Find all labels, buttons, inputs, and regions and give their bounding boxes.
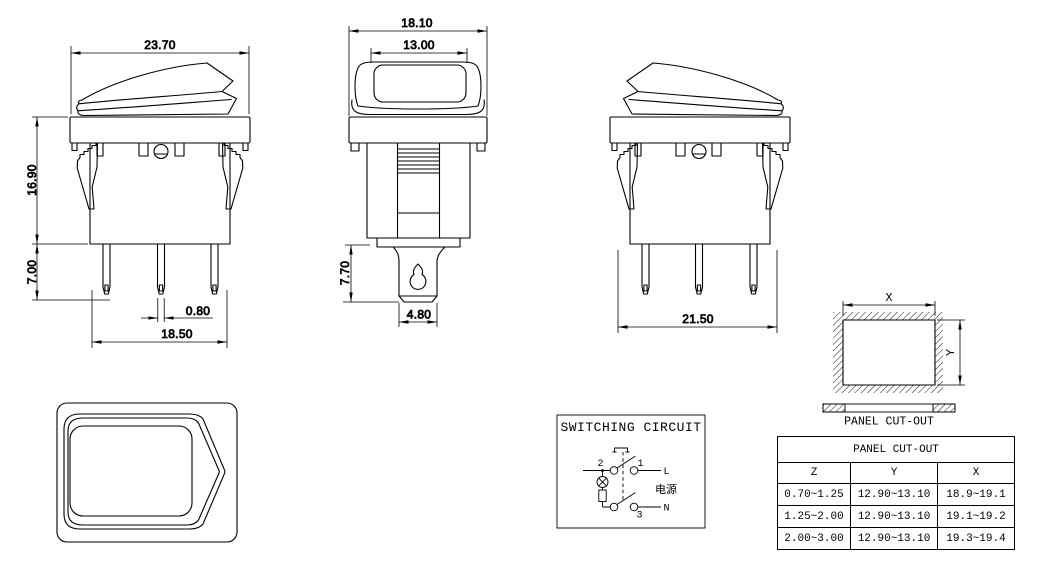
side-view: 18.10 13.00 7.70 4.80 [338,16,487,327]
dim-label-terminal-length: 7.70 [338,261,352,286]
bezel-lip [351,143,485,151]
power-source-label: 电源 [655,482,677,496]
table-title-row: PANEL CUT-OUT [778,437,1015,463]
table-row: 2.00~3.00 12.90~13.10 19.3~19.4 [778,528,1015,550]
table-cell: 1.25~2.00 [778,506,851,528]
bottom-flange [367,238,470,247]
terminal-1-label: 1 [637,459,643,470]
dim-label-side-outer-width: 18.10 [401,16,433,30]
dim-label-front-upper-height: 16.90 [25,164,39,196]
rear-view: 21.50 [610,63,790,333]
panel-cutout-table: PANEL CUT-OUT Z Y X 0.70~1.25 12.90~13.1… [777,436,1015,550]
dim-label-pin-span: 18.50 [161,327,193,341]
dim-label-body-width: 21.50 [682,312,714,326]
switch-contact [610,467,618,475]
terminal-keyhole [410,264,426,289]
terminal-3-label: 3 [636,511,642,522]
dim-label-front-top-width: 23.70 [144,38,176,52]
column-header-z: Z [778,463,851,484]
column-header-x: X [938,463,1015,484]
panel-cutout-diagram: X Y PANEL CUT-OUT [823,291,965,429]
table-cell: 18.9~19.1 [938,484,1015,506]
switch-contact [610,503,618,511]
top-view-bezel [57,403,237,542]
dim-label-side-inner-width: 13.00 [403,38,435,52]
table-title: PANEL CUT-OUT [778,437,1015,463]
rocker-face [374,65,466,102]
table-cell: 12.90~13.10 [851,506,938,528]
switching-circuit: SWITCHING CIRCUIT 2 1 L N 3 电源 [557,415,705,528]
resistor [599,490,606,502]
side-view-dimensions: 18.10 13.00 7.70 4.80 [338,16,487,327]
table-row: 1.25~2.00 12.90~13.10 19.1~19.2 [778,506,1015,528]
top-view-rocker-face [70,426,192,516]
mounting-bezel [349,117,487,143]
cutout-x-label: X [885,291,892,305]
cutout-y-label: Y [944,349,958,356]
neutral-label: N [664,504,670,515]
dim-label-front-lower-height: 7.00 [25,260,39,285]
lamp-cross [599,478,607,486]
panel-cutout-caption: PANEL CUT-OUT [844,416,934,429]
table-cell: 0.70~1.25 [778,484,851,506]
top-view [57,403,237,542]
table-cell: 2.00~3.00 [778,528,851,550]
table-row: 0.70~1.25 12.90~13.10 18.9~19.1 [778,484,1015,506]
switch-blades [617,456,636,505]
front-view: 23.70 16.90 7.00 0.80 18.50 [25,38,250,348]
top-view-rocker-inner-outline [68,418,219,525]
front-view-dimensions: 23.70 16.90 7.00 0.80 18.50 [25,38,249,348]
panel-side-bar-hatch [933,404,955,412]
table-cell: 19.1~19.2 [938,506,1015,528]
top-view-rocker-outline [64,414,225,529]
table-header-row: Z Y X [778,463,1015,484]
panel-side-bar-hatch [823,404,845,412]
table-cell: 19.3~19.4 [938,528,1015,550]
solder-terminal [393,247,445,302]
rocker-symbol [613,448,630,452]
dim-label-pin-thickness: 0.80 [186,304,211,318]
panel-hatch-band [833,312,943,393]
dim-label-terminal-width: 4.80 [407,308,432,322]
column-header-y: Y [851,463,938,484]
line-label: L [664,467,670,478]
cutout-hole [843,320,935,385]
table-cell: 12.90~13.10 [851,528,938,550]
neck-ribs [398,149,440,173]
drawing-sheet: 23.70 16.90 7.00 0.80 18.50 [0,0,1039,568]
terminal-2-label: 2 [597,459,603,470]
circuit-title: SWITCHING CIRCUIT [560,420,701,435]
table-cell: 12.90~13.10 [851,484,938,506]
